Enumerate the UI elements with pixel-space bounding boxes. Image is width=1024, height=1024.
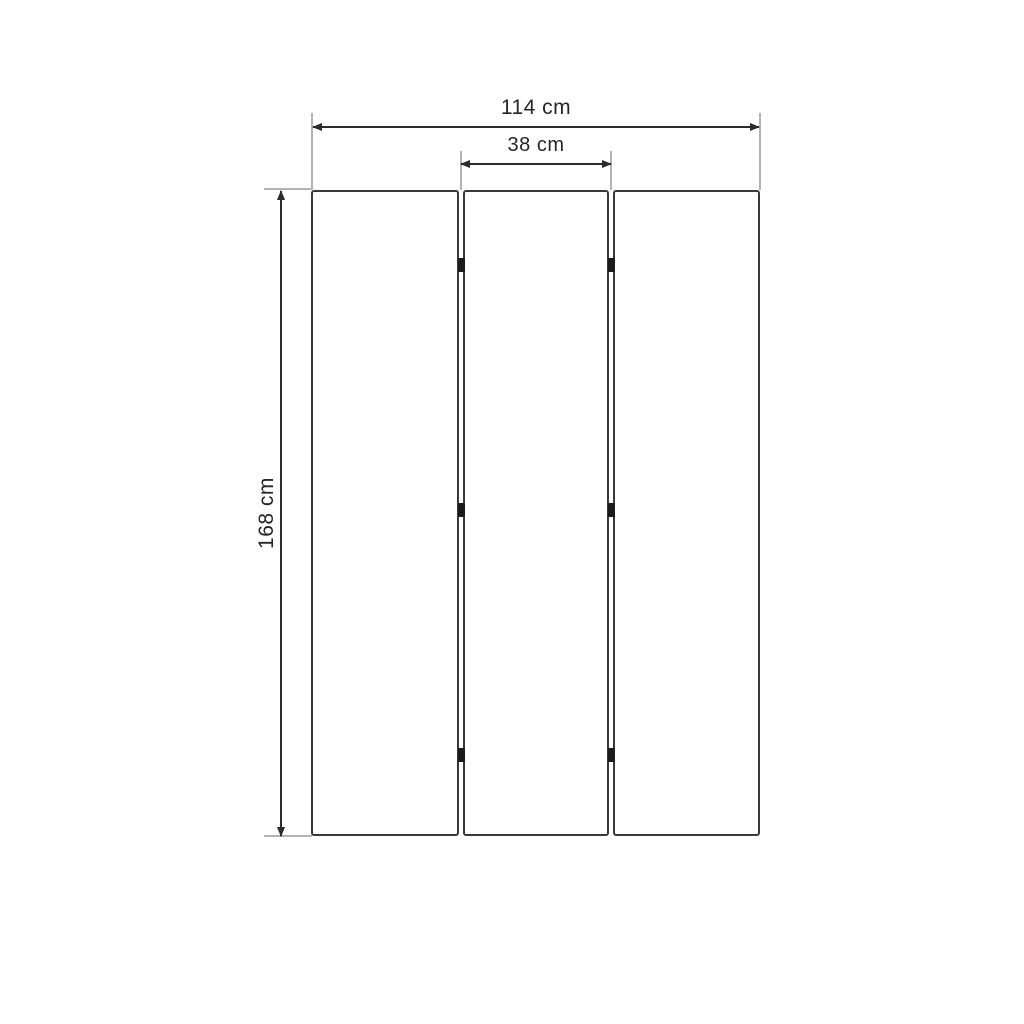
panel-right [613, 190, 760, 836]
dimension-line-height [280, 191, 282, 836]
hinge-left-top [458, 258, 465, 272]
hinge-right-middle [608, 503, 615, 517]
extension-line-height-bottom [264, 835, 312, 837]
total-width-label: 114 cm [436, 96, 636, 120]
hinge-left-bottom [458, 748, 465, 762]
dimension-line-panel-width [461, 163, 611, 165]
arrowhead-up-icon [277, 190, 285, 200]
arrowhead-right-icon [602, 160, 612, 168]
panel-left [311, 190, 459, 836]
panel-middle [463, 190, 609, 836]
arrowhead-left-icon [460, 160, 470, 168]
arrowhead-left-icon [312, 123, 322, 131]
hinge-right-bottom [608, 748, 615, 762]
hinge-left-middle [458, 503, 465, 517]
arrowhead-down-icon [277, 827, 285, 837]
extension-line-height-top [264, 188, 312, 190]
folding-screen-diagram: 114 cm 38 cm 168 cm [0, 0, 1024, 1024]
dimension-line-total-width [313, 126, 759, 128]
arrowhead-right-icon [750, 123, 760, 131]
height-label: 168 cm [255, 413, 279, 613]
panel-width-label: 38 cm [436, 134, 636, 157]
hinge-right-top [608, 258, 615, 272]
